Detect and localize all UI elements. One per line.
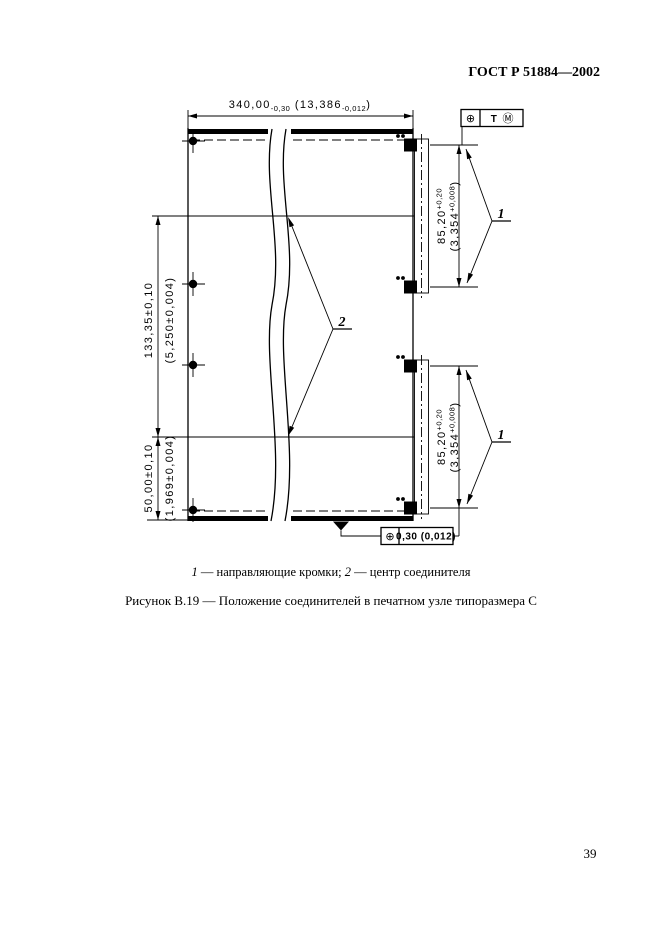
tolerance-frame-bottom: ⊕ 0,30 (0,012) (333, 522, 456, 545)
dim-left-span-in: (5,250±0,004) (164, 277, 176, 364)
index-dot (401, 276, 405, 280)
leader-line (466, 370, 492, 442)
dim-left-bottom-in: (1,969±0,004) (164, 435, 176, 522)
leader-arrow (467, 494, 473, 504)
target-mark (182, 272, 205, 296)
index-dot (401, 497, 405, 501)
index-dot (396, 497, 400, 501)
frame-leader (341, 531, 381, 537)
dim-left-bottom-mm: 50,00±0,10 (143, 444, 155, 513)
break-lines (269, 129, 289, 521)
leader-line (289, 329, 333, 434)
guide-edge-top-right-bar (291, 129, 413, 134)
arrowhead (404, 114, 413, 119)
connector-lower-pad-bottom (404, 502, 417, 515)
index-dot (401, 134, 405, 138)
arrowhead (188, 114, 197, 119)
dim-left-span-mm: 133,35±0,10 (143, 282, 155, 359)
arrowhead (156, 437, 161, 446)
index-dot (396, 276, 400, 280)
leader-arrow (288, 217, 294, 227)
connector-upper-pad-bottom (404, 281, 417, 294)
board-outline (188, 110, 413, 521)
break-line-left (269, 129, 275, 521)
index-dot (401, 355, 405, 359)
arrowhead (457, 499, 462, 508)
dimension-right-upper: 85,20+0,20 (3,354+0,008) (430, 145, 478, 287)
page-number: 39 (584, 846, 597, 861)
arrowhead (156, 428, 161, 437)
break-line-right (283, 129, 289, 521)
position-symbol: ⊕ (385, 530, 394, 543)
figure-caption: Рисунок В.19 — Положение соединителей в … (125, 593, 537, 608)
position-symbol: ⊕ (466, 112, 475, 125)
dimension-left-bottom: 50,00±0,10 (1,969±0,004) (143, 435, 188, 522)
dim-top-label: 340,00-0,30 (13,386-0,012) (229, 99, 372, 113)
leader-line (466, 149, 492, 221)
leader-arrow (466, 370, 472, 380)
arrowhead (156, 216, 161, 225)
leader-line (289, 219, 333, 329)
page-header: ГОСТ Р 51884—2002 (468, 65, 600, 80)
index-dot (396, 355, 400, 359)
target-marks (182, 129, 205, 522)
callout-2: 2 (288, 217, 352, 436)
mmc-modifier-symbol: Ⓜ (503, 112, 514, 125)
arrowhead (457, 145, 462, 154)
connector-upper-pad-top (404, 139, 417, 152)
callout-number: 1 (498, 207, 505, 222)
tolerance-letter: Т (491, 114, 498, 125)
dimension-right-lower: 85,20+0,20 (3,354+0,008) (430, 366, 478, 536)
index-dot (396, 134, 400, 138)
leader-arrow (467, 273, 473, 283)
leader-arrow (466, 149, 472, 159)
callout-number: 1 (498, 428, 505, 443)
drawing-canvas: ГОСТ Р 51884—2002 (0, 0, 661, 936)
guide-edge-bottom-right-bar (291, 516, 413, 521)
dimension-left-span: 133,35±0,10 (5,250±0,004) (143, 216, 176, 437)
datum-triangle (333, 522, 349, 531)
callout-1-lower: 1 (466, 370, 511, 504)
figure-legend: 1 — направляющие кромки; 2 — центр соеди… (192, 565, 471, 579)
tolerance-value: 0,30 (0,012) (396, 532, 456, 543)
document-page: ГОСТ Р 51884—2002 (0, 0, 661, 936)
arrowhead (457, 278, 462, 287)
datum-frame-top: ⊕ Т Ⓜ (461, 110, 523, 146)
dim-right-lower-mm: 85,20+0,20 (435, 409, 449, 465)
target-mark (182, 353, 205, 377)
callout-1-upper: 1 (466, 149, 511, 283)
arrowhead (457, 366, 462, 375)
callout-number: 2 (338, 315, 346, 330)
arrowhead (156, 511, 161, 520)
connector-lower-pad-top (404, 360, 417, 373)
dim-right-upper-mm: 85,20+0,20 (435, 188, 449, 244)
guide-edge-top-left-bar (188, 129, 268, 134)
guide-edge-bottom-left-bar (188, 516, 268, 521)
dimension-top: 340,00-0,30 (13,386-0,012) (188, 99, 413, 119)
